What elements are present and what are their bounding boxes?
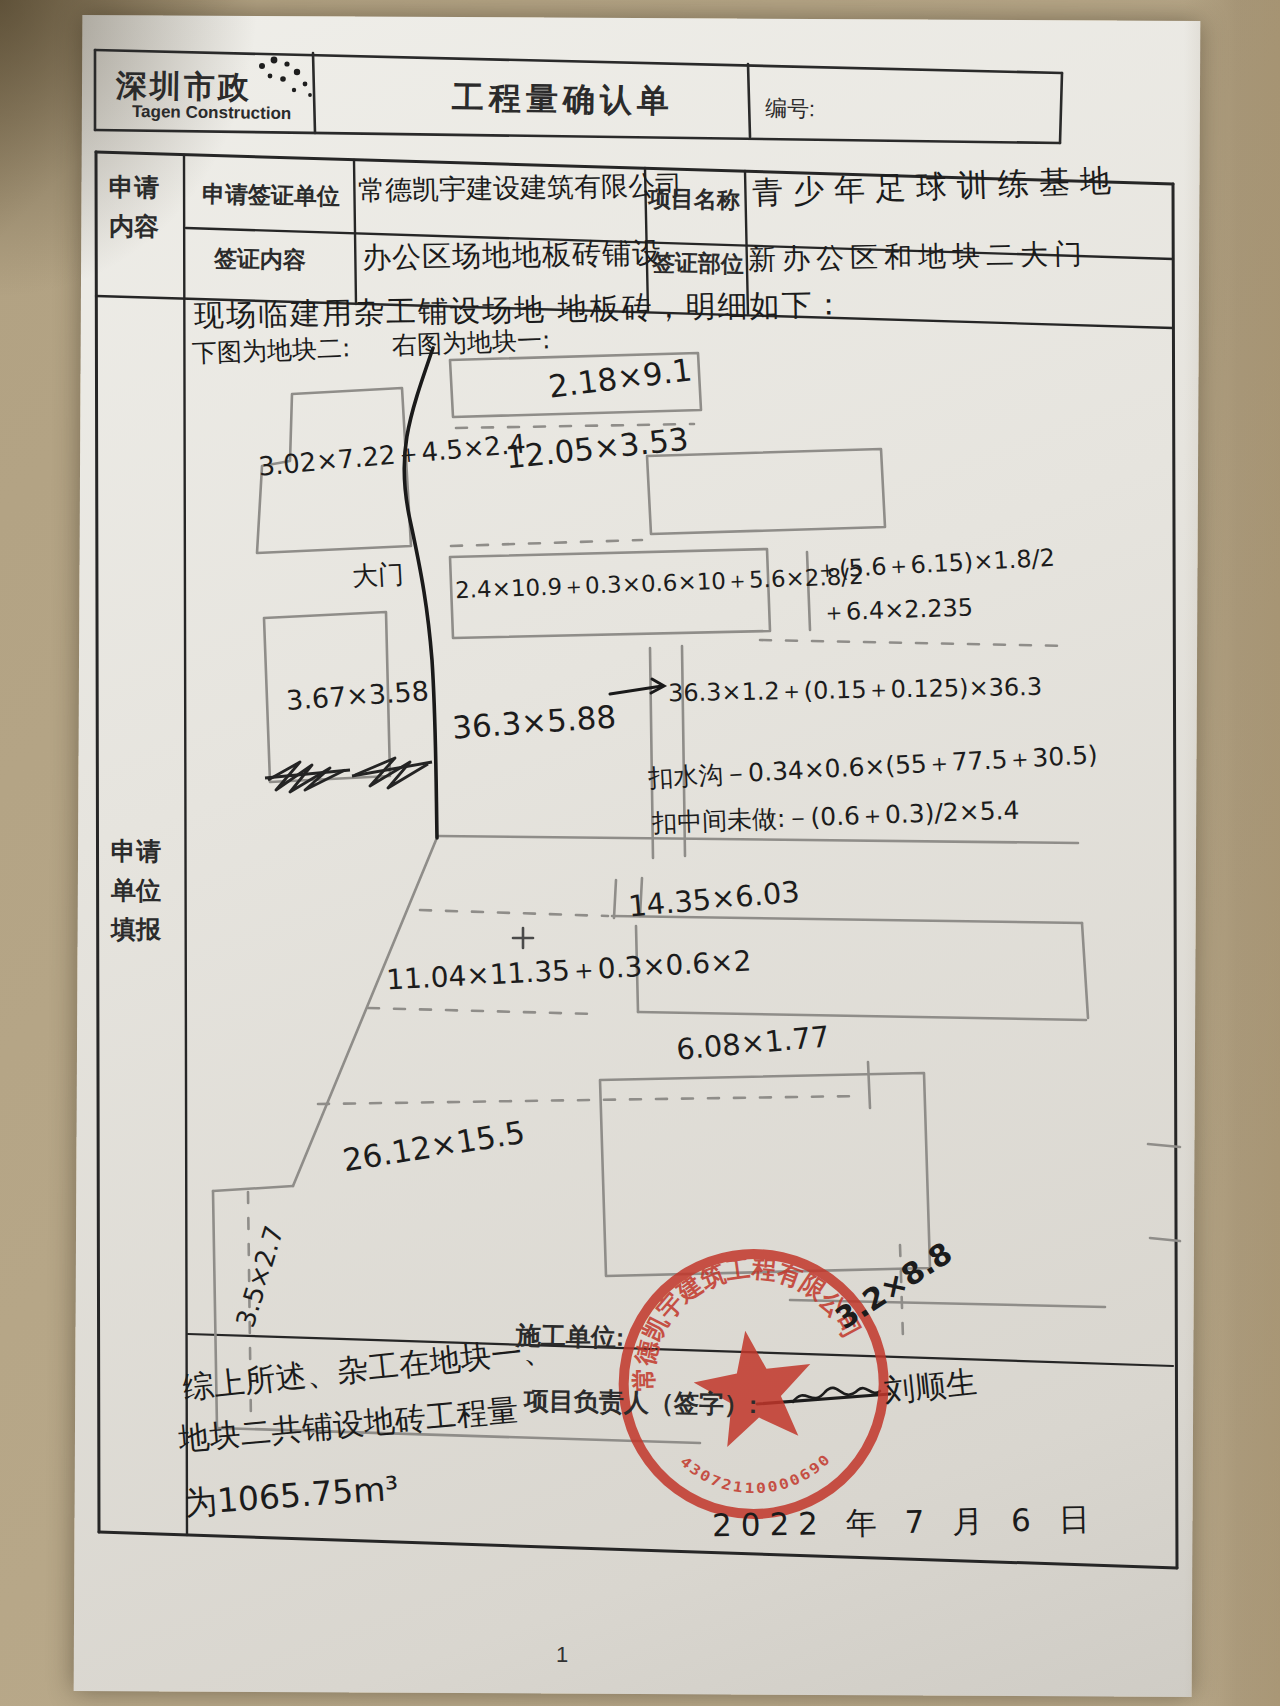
page-number: 1 [556, 1642, 568, 1668]
field-value-applicant-unit: 常德凯宇建设建筑有限公司 [358, 167, 683, 209]
document-number-label: 编号: [765, 94, 816, 125]
project-manager-label: 项目负责人（签字）: [524, 1384, 758, 1421]
photo-background: 常德凯宇建筑工程有限公司 43072110000690 深圳市政 Tagen C… [0, 0, 1280, 1706]
field-label-project-name: 项目名称 [648, 183, 741, 216]
stamp-star [687, 1321, 821, 1450]
section-label-applicant-fill: 申请单位填报 [106, 832, 166, 948]
logo-dots [259, 57, 312, 97]
gate-label: 大门 [351, 557, 405, 595]
caption-plot1: 右图为地块一: [391, 323, 550, 362]
company-logo-subtext: Tagen Construction [132, 102, 292, 124]
measurement-note: ＋6.4×2.235 [821, 591, 973, 628]
crossed-out-scribble [265, 758, 432, 792]
field-label-visa-location: 签证部位 [652, 247, 745, 280]
date-handwritten: 2022 年 7 月 6 日 [712, 1499, 1099, 1548]
caption-plot2: 下图为地块二: [191, 331, 350, 370]
field-label-applicant-unit: 申请签证单位 [202, 179, 341, 212]
form-title: 工程量确认单 [452, 76, 675, 123]
measurement-note: 36.3×1.2＋(0.15＋0.125)×36.3 [668, 671, 1043, 710]
company-stamp: 常德凯宇建筑工程有限公司 43072110000690 [605, 1235, 903, 1533]
field-value-visa-content: 办公区场地地板砖铺设 [362, 233, 663, 278]
section-label-application-content: 申请内容 [104, 168, 164, 246]
field-value-visa-location: 新办公区和地块二大门 [748, 235, 1089, 279]
field-label-visa-content: 签证内容 [214, 243, 307, 276]
